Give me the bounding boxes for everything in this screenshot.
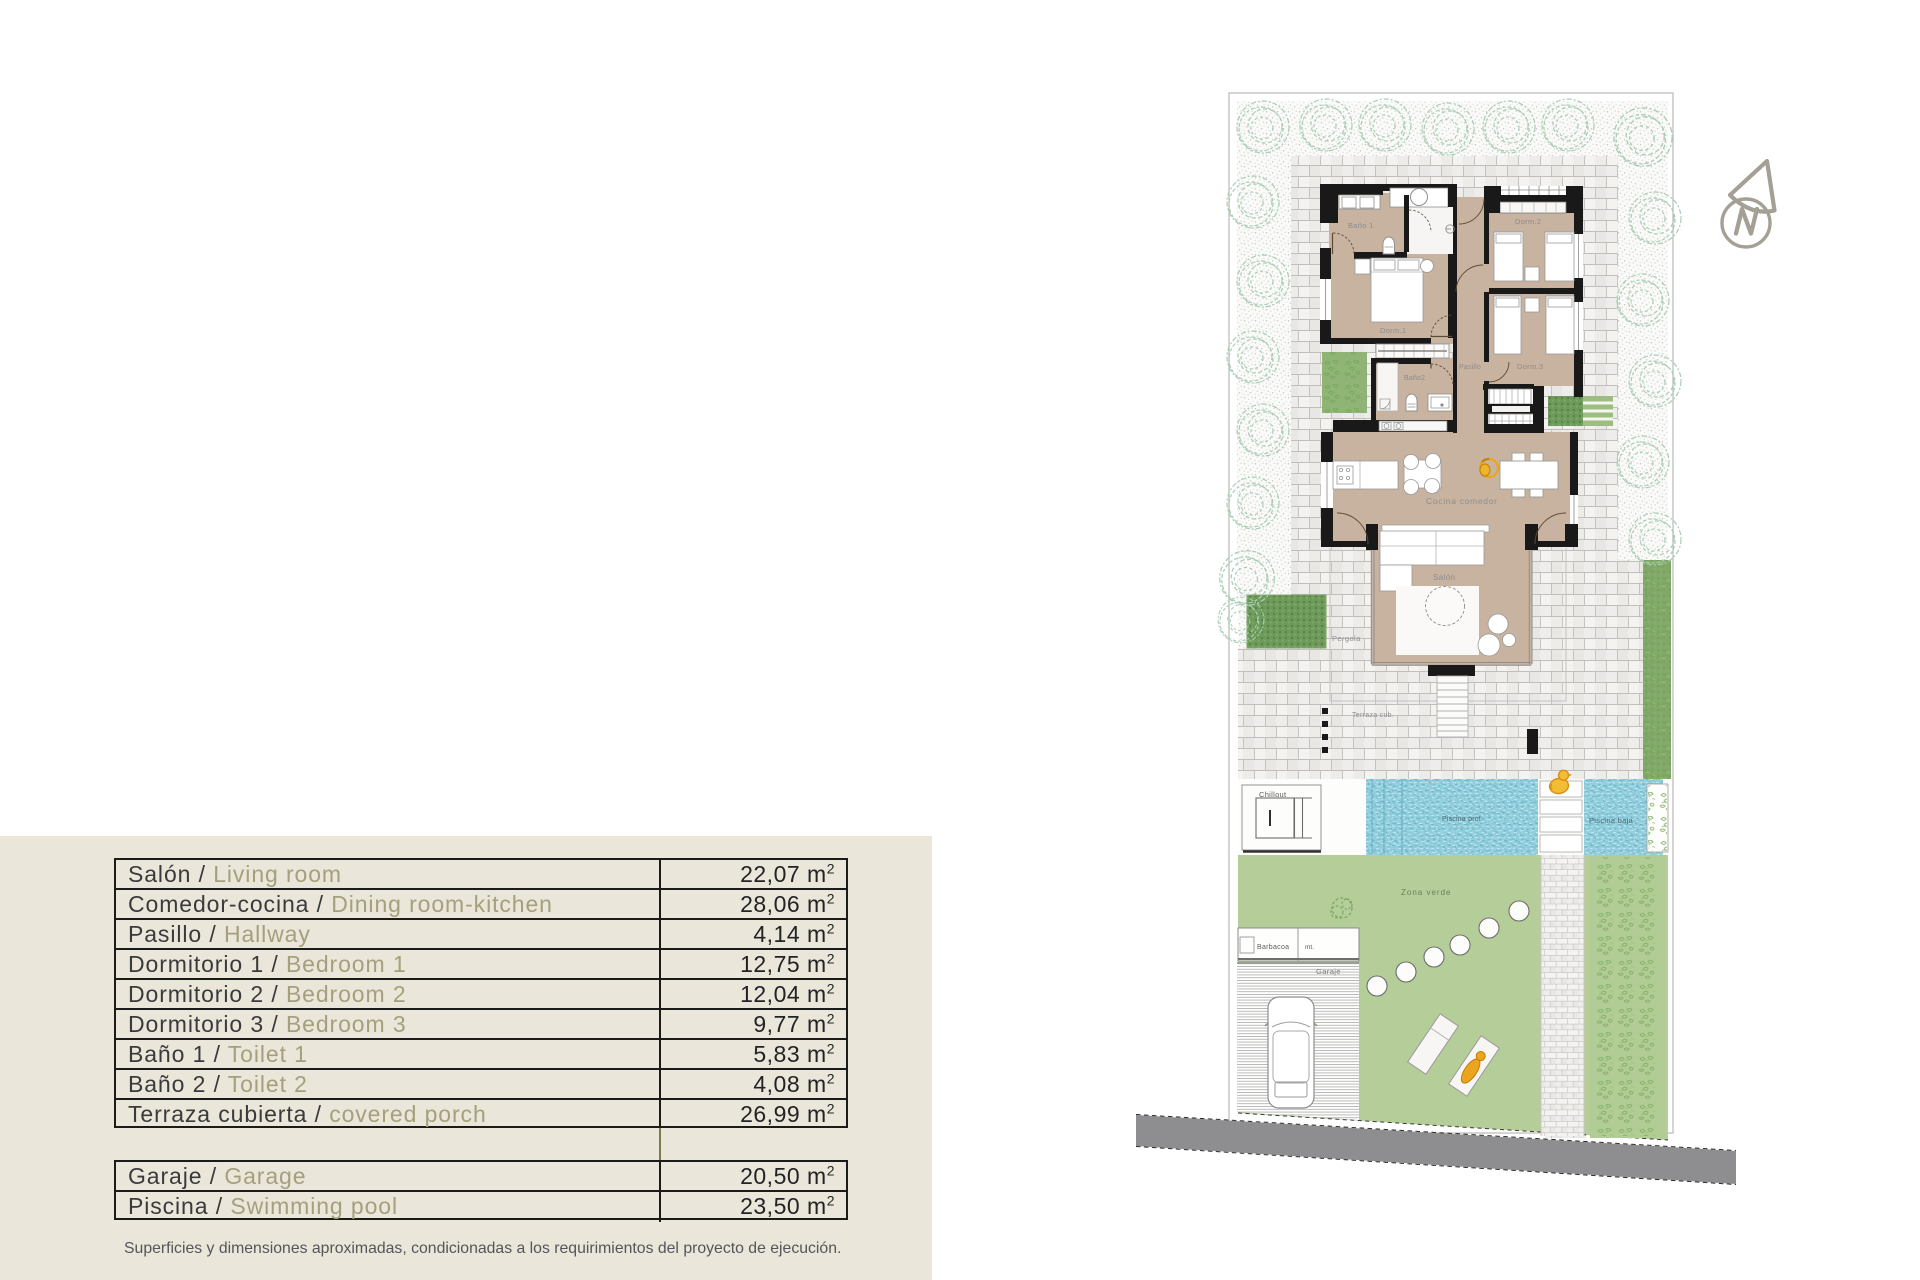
svg-text:Dorm.3: Dorm.3 [1517, 362, 1543, 371]
svg-text:Terraza cub.: Terraza cub. [1352, 712, 1394, 719]
svg-text:Chillout: Chillout [1259, 790, 1287, 799]
svg-text:Garaje: Garaje [1316, 967, 1341, 976]
svg-text:Salón: Salón [1433, 573, 1455, 582]
svg-text:Cocina comedor: Cocina comedor [1426, 496, 1498, 506]
svg-text:Baño 1: Baño 1 [1348, 221, 1374, 230]
svg-text:Baño2: Baño2 [1404, 375, 1425, 382]
svg-text:Zona verde: Zona verde [1401, 888, 1451, 897]
svg-text:Pergola: Pergola [1332, 634, 1361, 643]
svg-text:Pasillo: Pasillo [1459, 364, 1481, 371]
svg-text:Dorm.2: Dorm.2 [1515, 217, 1541, 226]
svg-text:Piscina prof.: Piscina prof. [1442, 816, 1483, 823]
svg-text:Dorm.1: Dorm.1 [1380, 326, 1406, 335]
svg-text:Barbacoa: Barbacoa [1257, 944, 1289, 951]
svg-text:Piscina baja: Piscina baja [1589, 816, 1634, 825]
svg-text:mt.: mt. [1305, 944, 1314, 951]
